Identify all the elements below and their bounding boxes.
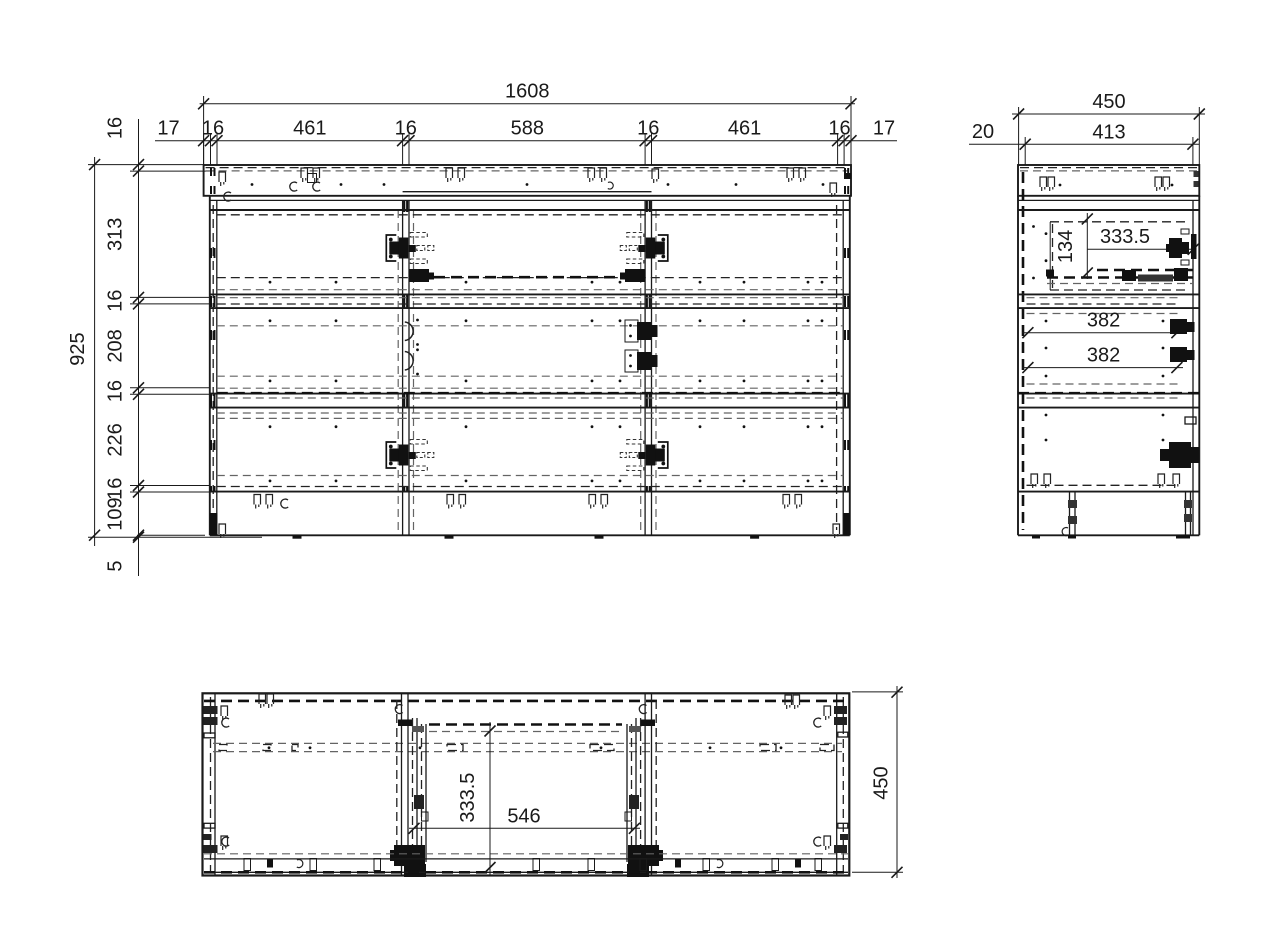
svg-text:5: 5 bbox=[105, 560, 127, 571]
svg-text:461: 461 bbox=[728, 118, 761, 140]
svg-text:450: 450 bbox=[1092, 91, 1125, 113]
svg-text:16: 16 bbox=[202, 118, 224, 140]
svg-text:461: 461 bbox=[293, 118, 326, 140]
svg-text:16: 16 bbox=[105, 117, 127, 139]
svg-text:450: 450 bbox=[871, 766, 893, 799]
svg-text:20: 20 bbox=[972, 121, 994, 143]
svg-text:313: 313 bbox=[105, 218, 127, 251]
svg-text:17: 17 bbox=[873, 118, 895, 140]
svg-text:134: 134 bbox=[1055, 230, 1077, 263]
svg-text:208: 208 bbox=[105, 329, 127, 362]
svg-text:333.5: 333.5 bbox=[1100, 226, 1150, 248]
svg-text:413: 413 bbox=[1092, 121, 1125, 143]
svg-text:16: 16 bbox=[105, 478, 127, 500]
svg-text:588: 588 bbox=[511, 118, 544, 140]
svg-text:382: 382 bbox=[1087, 345, 1120, 367]
svg-text:16: 16 bbox=[105, 290, 127, 312]
svg-text:546: 546 bbox=[507, 805, 540, 827]
svg-text:17: 17 bbox=[157, 118, 179, 140]
svg-text:382: 382 bbox=[1087, 310, 1120, 332]
svg-text:16: 16 bbox=[395, 118, 417, 140]
svg-text:925: 925 bbox=[67, 332, 89, 365]
svg-text:109: 109 bbox=[105, 497, 127, 530]
svg-text:226: 226 bbox=[105, 423, 127, 456]
svg-text:16: 16 bbox=[105, 380, 127, 402]
svg-text:16: 16 bbox=[637, 118, 659, 140]
svg-text:333.5: 333.5 bbox=[457, 773, 479, 823]
svg-text:16: 16 bbox=[828, 118, 850, 140]
svg-text:1608: 1608 bbox=[505, 81, 550, 103]
